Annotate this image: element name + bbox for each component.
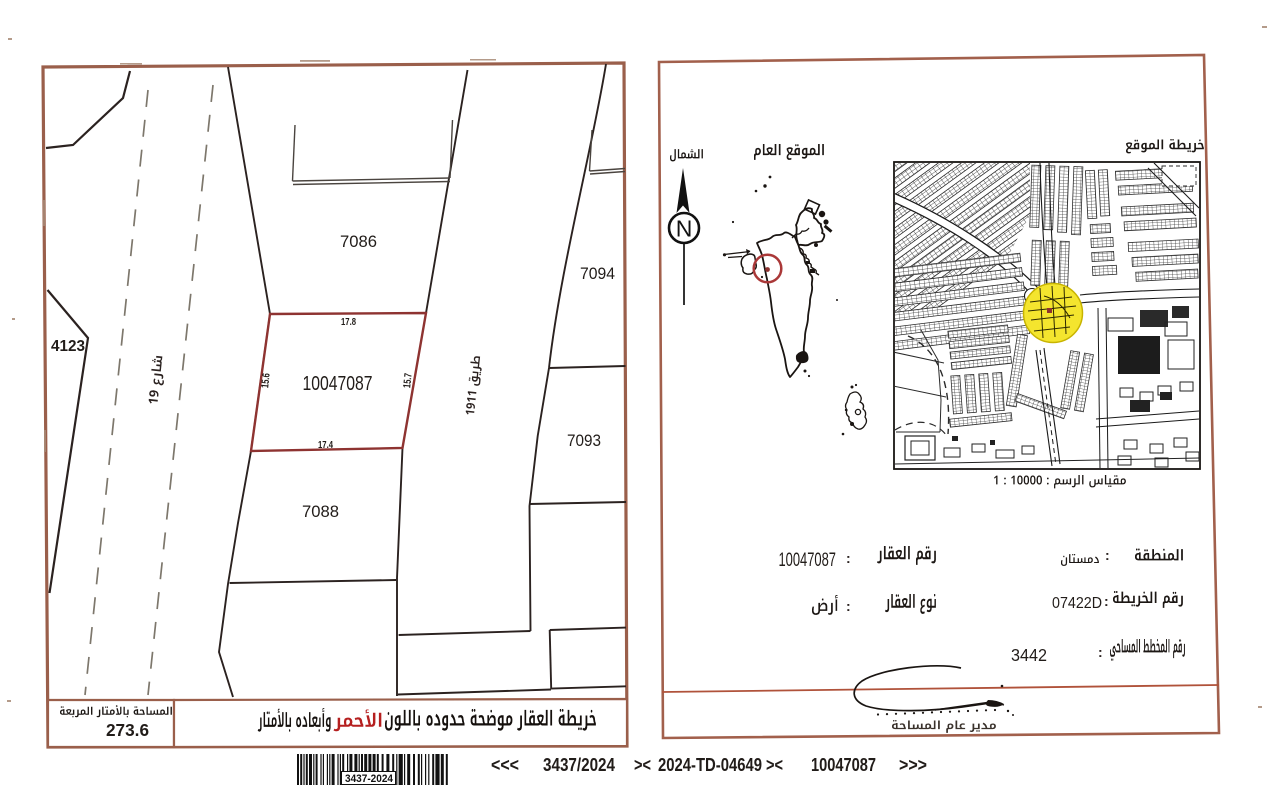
svg-text:4123: 4123 <box>51 338 85 355</box>
svg-text:10047087: 10047087 <box>303 373 373 395</box>
svg-text:10047087: 10047087 <box>779 549 837 571</box>
svg-text::: : <box>1098 644 1103 660</box>
svg-text::: : <box>846 550 851 566</box>
svg-text:7094: 7094 <box>580 265 615 283</box>
svg-text:>>>: >>> <box>899 754 927 775</box>
svg-text:15.6: 15.6 <box>259 372 273 388</box>
svg-text:10047087: 10047087 <box>811 754 876 775</box>
svg-text:273.6: 273.6 <box>106 720 149 740</box>
svg-text:><: >< <box>766 754 783 775</box>
svg-text:<<<: <<< <box>491 754 519 775</box>
svg-text::: : <box>846 598 851 614</box>
svg-text:17.8: 17.8 <box>341 316 356 328</box>
svg-text:7088: 7088 <box>302 503 339 521</box>
svg-text:><: >< <box>634 754 651 775</box>
svg-text:N: N <box>676 216 693 242</box>
svg-text:07422D: 07422D <box>1052 595 1102 612</box>
svg-text:3442: 3442 <box>1011 645 1047 665</box>
svg-text:15.7: 15.7 <box>401 372 415 388</box>
svg-text:2024-TD-04649: 2024-TD-04649 <box>658 754 762 775</box>
svg-text::: : <box>1104 593 1109 609</box>
svg-text:17.4: 17.4 <box>318 439 333 451</box>
svg-text:7093: 7093 <box>567 432 601 450</box>
svg-text:7086: 7086 <box>340 233 377 251</box>
svg-text::: : <box>1105 547 1110 563</box>
svg-text:3437/2024: 3437/2024 <box>543 754 616 775</box>
svg-text:3437-2024: 3437-2024 <box>345 773 394 785</box>
